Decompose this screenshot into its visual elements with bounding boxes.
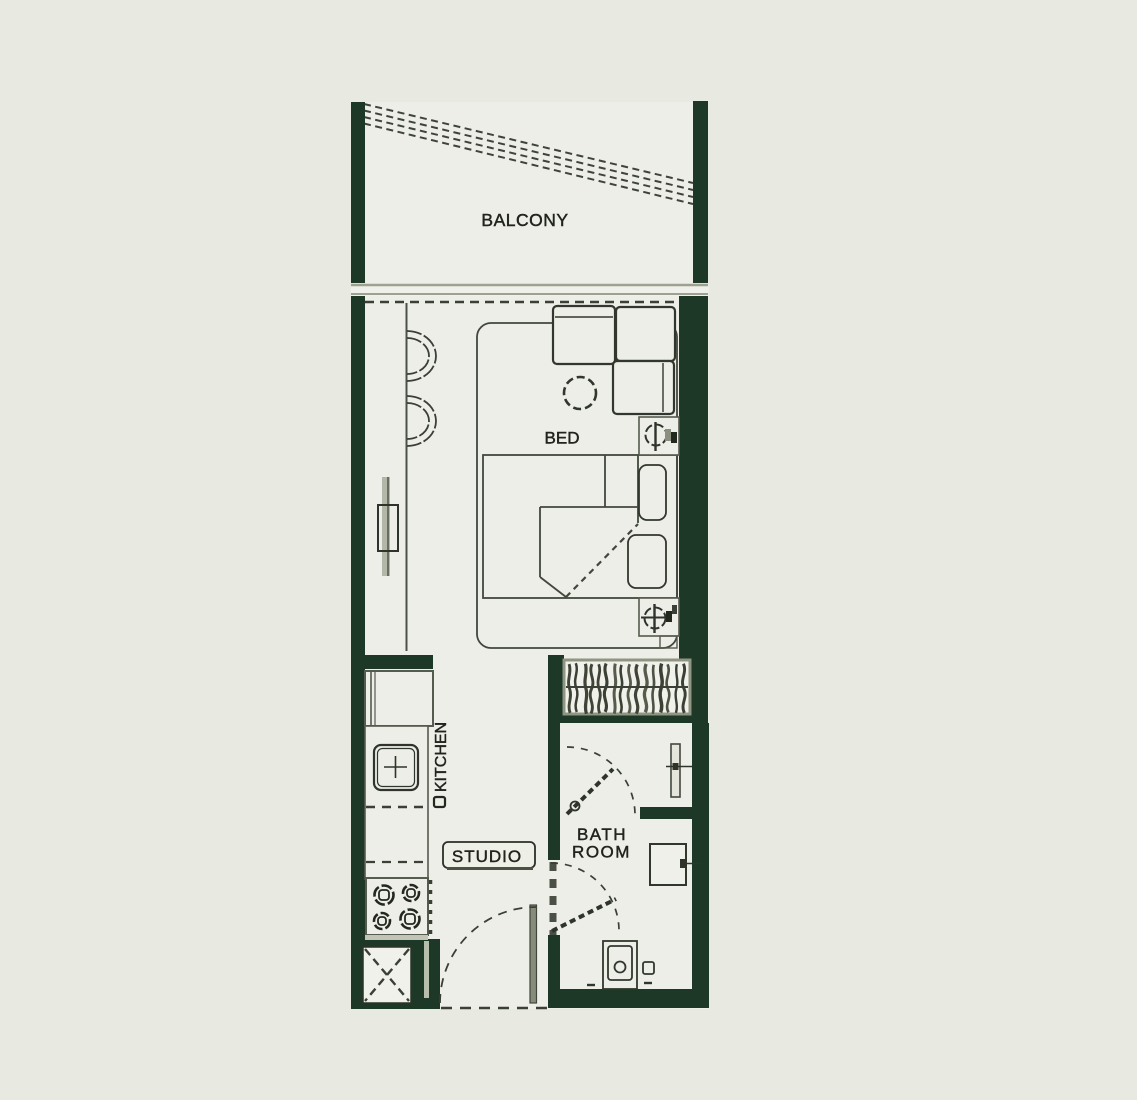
svg-text:ROOM: ROOM — [572, 843, 631, 862]
svg-text:BED: BED — [545, 429, 580, 448]
svg-text:BALCONY: BALCONY — [481, 210, 568, 230]
svg-text:STUDIO: STUDIO — [452, 847, 522, 866]
svg-text:BATH: BATH — [577, 825, 627, 844]
svg-text:KITCHEN: KITCHEN — [433, 722, 450, 792]
